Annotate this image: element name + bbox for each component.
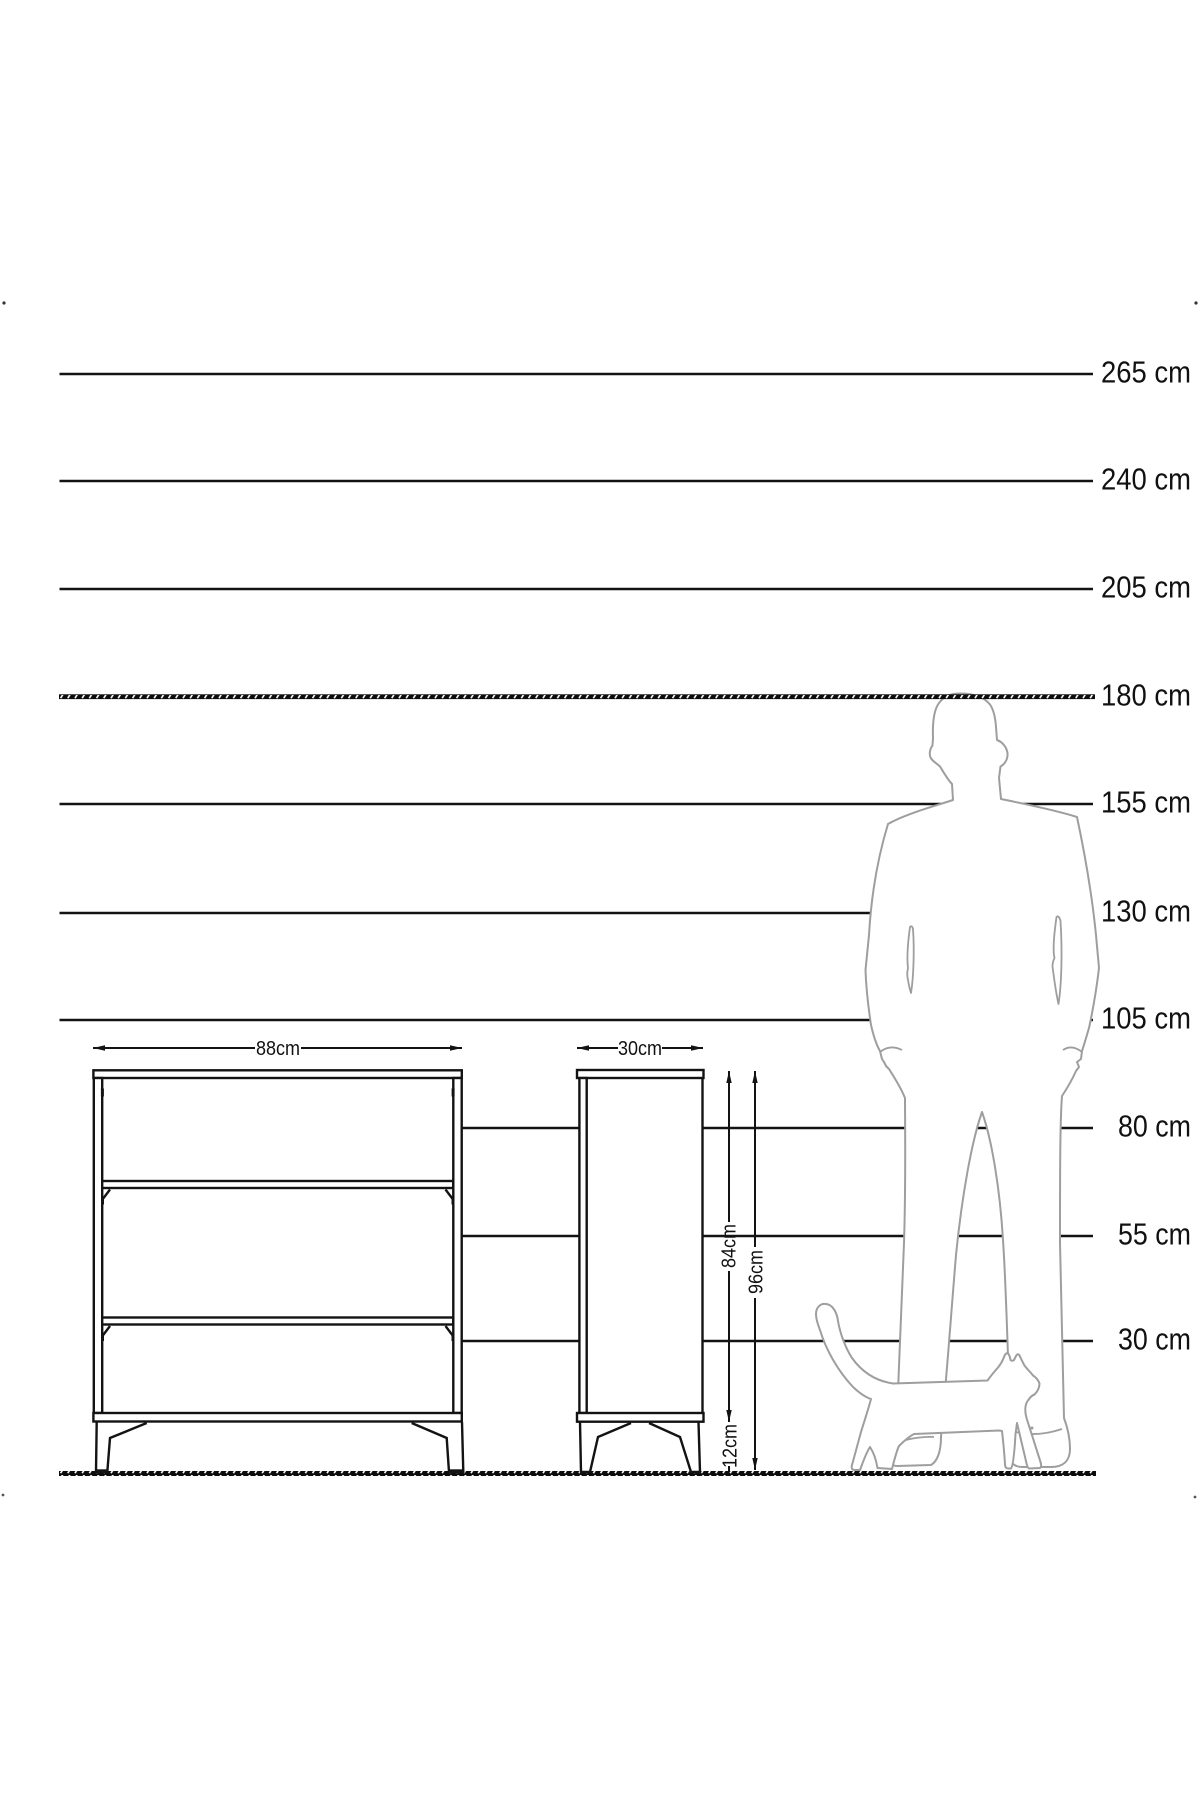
svg-text:30 cm: 30 cm [1118,1322,1191,1357]
svg-text:155 cm: 155 cm [1101,785,1191,820]
svg-text:240 cm: 240 cm [1101,462,1191,497]
svg-text:12cm: 12cm [720,1424,742,1468]
svg-text:30cm: 30cm [618,1038,662,1060]
svg-text:96cm: 96cm [746,1250,768,1294]
svg-text:88cm: 88cm [256,1038,300,1060]
svg-text:180 cm: 180 cm [1101,678,1191,713]
svg-text:130 cm: 130 cm [1101,894,1191,929]
svg-text:205 cm: 205 cm [1101,570,1191,605]
svg-text:84cm: 84cm [719,1224,741,1268]
svg-text:265 cm: 265 cm [1101,355,1191,390]
svg-text:55 cm: 55 cm [1118,1217,1191,1252]
svg-text:105 cm: 105 cm [1101,1001,1191,1036]
svg-text:80 cm: 80 cm [1118,1109,1191,1144]
